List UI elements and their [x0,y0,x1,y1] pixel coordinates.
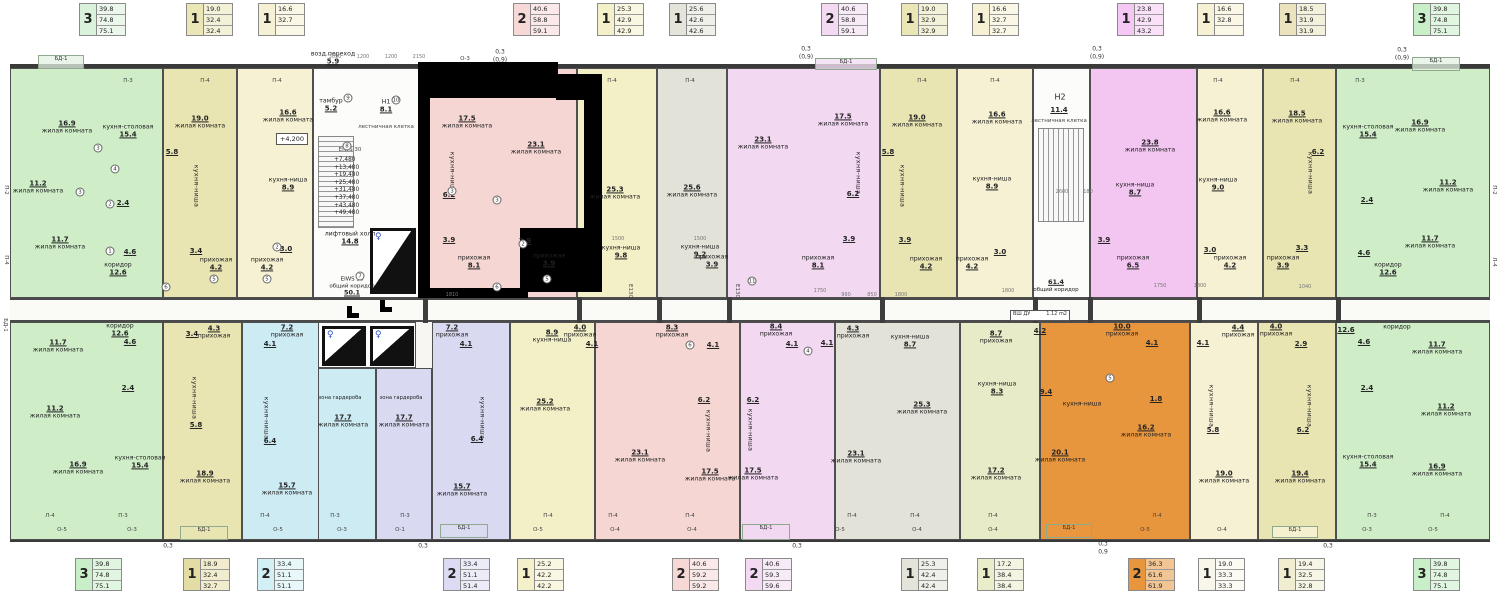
staircase-icon [1038,128,1084,222]
room-label: кухня-ниша8.7 [891,333,930,348]
room-label: кухня-ниша8.9 [973,175,1012,190]
room-label: 19.4жилая комната [1275,469,1325,484]
room-label: 16.6жилая комната [263,108,313,123]
wall-pier [727,297,732,323]
room-label: кухня-ниша8.3 [978,380,1017,395]
room-label: кухня-ниша [185,377,204,420]
room-label: 15.7жилая комната [262,481,312,496]
room-label: 18.5жилая комната [1272,109,1322,124]
window-mark: П-4 [847,513,857,519]
room-label: кухня-ниша [187,165,206,208]
elevator-icon: ♀ [370,228,416,294]
room-label: 12.6 [1337,326,1354,334]
room-label: кухня-ниша8.9 [269,176,308,191]
room-label: 3.9 [1098,236,1110,244]
room-label: зона гардероба [319,396,362,402]
room-label: 8.7прихожая [980,329,1013,344]
legend-unit[interactable]: 125.342.942.9 [597,3,644,36]
window-mark: П-4 [685,513,695,519]
room-label: 4.4прихожая [1222,323,1255,338]
room-label: кухня-столовая15.4 [1343,123,1394,138]
dim-callout: 0,3 [801,46,811,53]
legend-unit[interactable]: 116.632.7 [258,3,305,36]
room-label: 19.0жилая комната [175,114,225,129]
legend-unit[interactable]: 233.451.151.4 [443,558,490,591]
dim-callout: 0,3 [1397,47,1407,54]
window-mark: О-3 [1362,527,1372,533]
door-number: 2 [519,240,528,249]
dim-callout: (0,9) [1395,55,1409,62]
door-number: 5 [543,275,552,284]
dim-callout: 0,9 [1098,549,1108,556]
door-number: 9 [344,94,353,103]
legend-unit[interactable]: 236.361.661.9 [1128,558,1175,591]
apartment-2room-bottom-4[interactable] [432,322,510,540]
dim-callout: 0,3 [792,543,802,550]
corridor-mark: Е130 [627,284,633,298]
stair-label: лестничная клетка [358,124,414,130]
window-mark: П-3 [1355,78,1365,84]
legend-unit[interactable]: 125.342.442.4 [901,558,948,591]
window-mark: П-4 [607,78,617,84]
dim-callout: 0,3 [163,543,173,550]
room-label: 3.0 [280,245,292,253]
window-mark: О-4 [687,527,697,533]
room-label: 5.8 [882,148,894,156]
room-label: 2.4 [1361,384,1373,392]
legend-unit[interactable]: 240.659.259.2 [672,558,719,591]
wall-pier [577,297,582,323]
legend-unit[interactable]: 118.932.432.7 [183,558,230,591]
dimension: 1040 [1299,284,1312,290]
legend-unit[interactable]: 233.451.151.1 [257,558,304,591]
window-mark: О-3 [337,527,347,533]
room-label: 11.4 [1050,106,1067,114]
window-mark: Л-4 [45,513,55,519]
window-mark: О-5 [835,527,845,533]
room-label: 4.1 [264,340,276,348]
room-label: 19.0жилая комната [892,113,942,128]
window-mark: П-3 [1367,513,1377,519]
door-number: 4 [111,165,120,174]
window-mark: О-4 [610,527,620,533]
room-label: 16.9жилая комната [1412,462,1462,477]
room-label: 17.7жилая комната [379,413,429,428]
room-label: кухня-ниша9.0 [1199,176,1238,191]
room-label: 7.2прихожая [271,323,304,338]
room-label: 4.6 [1358,249,1370,257]
apartment-2room-bottom-3[interactable] [242,322,320,540]
room-label: 3.3 [1296,244,1308,252]
window-mark: П-2 [1491,185,1497,195]
dimension: 180 [1083,189,1093,195]
room-label: 17.7жилая комната [318,413,368,428]
window-mark: О-4 [1217,527,1227,533]
apartment-1room-bottom-9[interactable] [960,322,1040,540]
room-label: 4.3прихожая [198,324,231,339]
window-mark: О-5 [533,527,543,533]
room-label: кухня-ниша [473,397,492,440]
highlight-outline [584,74,602,246]
room-label: прихожая4.2 [910,255,943,270]
room-label: 4.6 [124,338,136,346]
dimension: 1800 [1002,288,1015,294]
door-number: 3 [94,144,103,153]
room-label: 3.9 [899,236,911,244]
room-label: кухня-ниша [1063,400,1102,407]
room-label: 3.9 [443,236,455,244]
legend-unit[interactable]: 119.432.532.8 [1278,558,1325,591]
room-label: 11.2жилая комната [13,179,63,194]
room-label: 6.2 [698,396,710,404]
highlight-outline [418,62,430,298]
room-label: 18.9жилая комната [180,469,230,484]
door-number: 8 [343,142,352,151]
legend-unit[interactable]: 125.642.642.6 [669,3,716,36]
window-mark: О-3 [460,56,470,62]
door-number: 5 [263,275,272,284]
door-number: 5 [1106,374,1115,383]
room-label: 11.7жилая комната [35,235,85,250]
legend-unit[interactable]: 118.531.931.9 [1279,3,1326,36]
room-label: 4.0прихожая [564,323,597,338]
room-label: коридор12.6 [106,322,133,337]
room-label: прихожая6.5 [1117,254,1150,269]
room-label: 3.0 [994,248,1006,256]
balcony: БД-1 [1272,526,1318,538]
dimension: 2150 [413,54,426,60]
dimension: 1810 [446,292,459,298]
window-mark: П-4 [685,78,695,84]
room-label: 2.9 [1295,340,1307,348]
room-label: 23.1жилая комната [831,449,881,464]
room-label: 4.1 [460,340,472,348]
room-label: 9.4 [1040,388,1052,396]
room-label: 16.9жилая комната [42,119,92,134]
dim-callout: 0,3 [1323,543,1333,550]
room-label: 23.8жилая комната [1125,138,1175,153]
room-label: 3.9 [843,235,855,243]
room-label: 7.2прихожая [436,323,469,338]
door-number: 3 [448,187,457,196]
legend-unit[interactable]: 240.658.859.1 [821,3,868,36]
window-mark: П-4 [990,78,1000,84]
legend-unit[interactable]: 116.632.8 [1197,3,1244,36]
room-label: зона гардероба [380,396,423,402]
balcony: БД-1 [815,58,877,70]
section-mark [347,306,359,318]
room-label: 4.1 [586,340,598,348]
window-mark: О-3 [127,527,137,533]
room-label: 11.2жилая комната [1423,178,1473,193]
legend-unit[interactable]: 119.033.333.3 [1198,558,1245,591]
dimension: 1200 [385,54,398,60]
legend-unit[interactable]: 339.874.875.1 [1413,3,1460,36]
apartment-1room-bottom-2[interactable] [163,322,242,540]
window-mark: П-3 [118,513,128,519]
room-label: 15.7жилая комната [437,482,487,497]
door-number: 5 [210,275,219,284]
window-mark: П-4 [1290,78,1300,84]
legend-unit[interactable]: 240.658.859.1 [513,3,560,36]
room-label: кухня-ниша [699,410,718,453]
corridor-label: EIWS 30общий коридор50.1 [329,277,374,298]
legend-unit[interactable]: 125.242.242.2 [517,558,564,591]
dim-callout: 0,3 [1092,46,1102,53]
dimension: 1500 [612,236,625,242]
room-label: кухня-столовая15.4 [1343,453,1394,468]
dimension: 1200 [357,54,370,60]
room-label: 5.8 [166,148,178,156]
room-label: 23.1жилая комната [511,140,561,155]
window-mark: П-4 [272,78,282,84]
window-mark: БД-1 [2,318,8,332]
window-mark: П-4 [200,78,210,84]
dimension: 2600 [1056,189,1069,195]
balcony: БД-1 [1412,57,1460,71]
room-label: 11.7жилая комната [1405,234,1455,249]
dimension: 1800 [1194,283,1207,289]
dim-callout: (0,9) [493,57,507,64]
room-label: 4.1 [1146,339,1158,347]
elevator-icon: ♀ [370,326,414,366]
door-number: 4 [804,347,813,356]
window-mark: О-1 [395,527,405,533]
window-mark: П-3 [330,513,340,519]
stair-label: лестничная клетка [1031,118,1087,124]
wall-pier [1336,297,1341,323]
room-label: тамбур5.2 [319,97,342,112]
legend-unit[interactable]: 116.632.732.7 [972,3,1019,36]
room-label: кухня-ниша8.7 [1116,181,1155,196]
room-label: Н18.1 [380,98,392,113]
level-marks: +7,480+13,480+19,480+25,480+31,480+37,48… [334,157,359,218]
room-label: кухня-ниша [893,165,912,208]
room-label: 6.4 [264,437,276,445]
dim-callout: 0,3 [418,543,428,550]
room-label: 3.4 [186,330,198,338]
legend-unit[interactable]: 119.032.932.9 [901,3,948,36]
window-mark: П-2 [3,185,9,195]
room-label: прихожая4.2 [251,256,284,271]
room-label: 4.1 [821,339,833,347]
room-label: 3.0 [1204,246,1216,254]
wall-pier [880,297,885,323]
room-label: 2.4 [117,199,129,207]
room-label: 4.6 [124,248,136,256]
highlight-outline [418,62,558,98]
room-label: 2.4 [1361,196,1373,204]
room-label: кухня-ниша [1300,385,1319,428]
room-label: 4.0прихожая [1260,322,1293,337]
balcony: БД-1 [38,55,84,69]
room-label: лифтовый холл14.8 [325,230,376,245]
legend-unit[interactable]: 339.874.875.1 [75,558,122,591]
window-mark: П-4 [608,513,618,519]
window-mark: О-5 [1140,527,1150,533]
dimension: 990 [841,292,851,298]
room-label: кухня-столовая15.4 [115,454,166,469]
room-label: 4.1 [1197,339,1209,347]
window-mark: П-4 [1213,78,1223,84]
window-mark: П-4 [260,513,270,519]
dimension: 850 [867,292,877,298]
room-label: коридор12.6 [104,261,131,276]
room-label: 4.2 [1034,327,1046,335]
room-label: 25.2жилая комната [520,397,570,412]
room-label: коридор [1383,323,1410,330]
dim-callout: (0,9) [799,54,813,61]
wall-pier [657,297,662,323]
door-number: 1 [106,247,115,256]
duct-shaft-label: ВШ ДУ1.12 m2 [1010,310,1070,321]
door-number: 2 [273,243,282,252]
room-label: 17.5жилая комната [818,112,868,127]
room-label: 16.2жилая комната [1121,423,1171,438]
room-label: 5.8 [190,421,202,429]
window-mark: П-4 [3,255,9,265]
door-number: 6 [162,283,171,292]
door-number: 3 [493,196,502,205]
room-label: 17.5жилая комната [728,466,778,481]
door-number: 10 [392,96,401,105]
room-label: кухня-столовая15.4 [103,123,154,138]
window-mark: О-5 [273,527,283,533]
dimension: 3050 [329,54,342,60]
section-mark [380,300,392,312]
room-label: прихожая4.2 [200,256,233,271]
room-label: 4.1 [786,340,798,348]
person-icon: ♀ [375,330,382,340]
room-label: 20.1жилая комната [1035,448,1085,463]
balcony: БД-1 [440,524,488,538]
apartment-2room-bottom-3-annex[interactable] [318,368,376,540]
room-label: кухня-ниша [1301,152,1320,195]
room-label: 4.3прихожая [837,324,870,339]
level-mark: +4,200 [276,133,308,145]
room-label: 11.7жилая комната [1412,340,1462,355]
door-number: 11 [748,277,757,286]
window-mark: П-4 [917,78,927,84]
person-icon: ♀ [375,232,382,242]
window-mark: П-4 [988,513,998,519]
door-number: 6 [686,341,695,350]
apartment-2room-bottom-6[interactable] [595,322,740,540]
window-mark: О-4 [912,527,922,533]
central-corridor [10,298,1490,322]
apartment-1room-bottom-11[interactable] [1190,322,1258,540]
dimension: 1800 [895,292,908,298]
apartment-3room-bottom-left[interactable] [10,322,163,540]
room-label: прихожая3.9 [696,253,729,268]
floor-plan-drawing: 339.874.875.1 119.032.432.4 116.632.7 24… [0,0,1500,597]
window-mark: П-3 [123,78,133,84]
legend-unit[interactable]: 123.842.943.2 [1117,3,1164,36]
highlight-outline [418,288,528,298]
stair-id: Н2 [1054,92,1065,101]
dim-callout: 0,3 [495,49,505,56]
room-label: 10.0прихожая [1106,322,1139,337]
room-label: кухня-ниша [257,397,276,440]
corridor-label: 61.4общий коридор [1033,279,1078,293]
room-label: коридор12.6 [1374,261,1401,276]
room-label: 19.0жилая комната [1199,469,1249,484]
room-label: кухня-ниша [741,409,760,452]
room-label: 4.6 [1358,338,1370,346]
room-label: 1.8 [1150,395,1162,403]
corridor-mark: Е130 [734,284,740,298]
legend-unit[interactable]: 339.874.875.1 [79,3,126,36]
legend-unit[interactable]: 117.238.438.4 [977,558,1024,591]
room-label: 4.1 [707,341,719,349]
room-label: 23.1жилая комната [738,135,788,150]
window-mark: О-5 [1428,527,1438,533]
room-label: прихожая4.2 [1214,254,1247,269]
door-number: 2 [106,200,115,209]
room-label: прихожая8.1 [802,254,835,269]
room-label: 6.2 [747,396,759,404]
elevator-icon: ♀ [322,326,366,366]
window-mark: О-5 [57,527,67,533]
room-label: кухня-ниша9.8 [602,244,641,259]
door-number: 6 [493,283,502,292]
window-mark: Л-4 [1152,513,1162,519]
room-label: 16.6жилая комната [972,110,1022,125]
room-label: 25.6жилая комната [667,183,717,198]
window-mark: О-4 [988,527,998,533]
room-label: 11.7жилая комната [33,338,83,353]
room-label: 16.9жилая комната [1395,118,1445,133]
room-label: кухня-ниша [849,152,868,195]
room-label: 11.2жилая комната [1421,402,1471,417]
door-number: 3 [76,188,85,197]
legend-unit[interactable]: 339.874.875.1 [1413,558,1460,591]
apartment-1room-bottom-5[interactable] [510,322,595,540]
apartment-1room-bottom-8[interactable] [835,322,960,540]
balcony: БД-1 [742,524,790,540]
room-label: прихожая3.9 [1267,254,1300,269]
room-label: прихожая3.9 [533,252,566,267]
room-label: 3.4 [190,247,202,255]
legend-unit[interactable]: 240.659.359.6 [745,558,792,591]
window-mark: Л-4 [1491,257,1497,267]
room-label: 2.4 [122,384,134,392]
room-label: прихожая4.2 [956,255,989,270]
dim-callout: (0,9) [1090,54,1104,61]
room-label: прихожая8.1 [458,254,491,269]
room-label: 5.8 [1207,426,1219,434]
room-label: 16.6жилая комната [1197,108,1247,123]
window-mark: П-4 [910,513,920,519]
wall-pier [1197,297,1202,323]
room-label: 25.3жилая комната [897,400,947,415]
room-label: 8.3прихожая [656,323,689,338]
wall-pier [1088,297,1093,323]
room-label: кухня-ниша [1202,385,1221,428]
door-number: 7 [356,272,365,281]
room-label: 17.5жилая комната [442,114,492,129]
room-label: 11.2жилая комната [30,404,80,419]
dimension: 1500 [694,236,707,242]
window-mark: П-4 [543,513,553,519]
dimension: 1750 [1154,283,1167,289]
room-label: 6.4 [471,435,483,443]
legend-unit[interactable]: 119.032.432.4 [186,3,233,36]
balcony: БД-1 [1046,524,1092,538]
room-label: 23.1жилая комната [615,448,665,463]
room-label: 25.3жилая комната [590,185,640,200]
room-label: 8.4прихожая [760,322,793,337]
